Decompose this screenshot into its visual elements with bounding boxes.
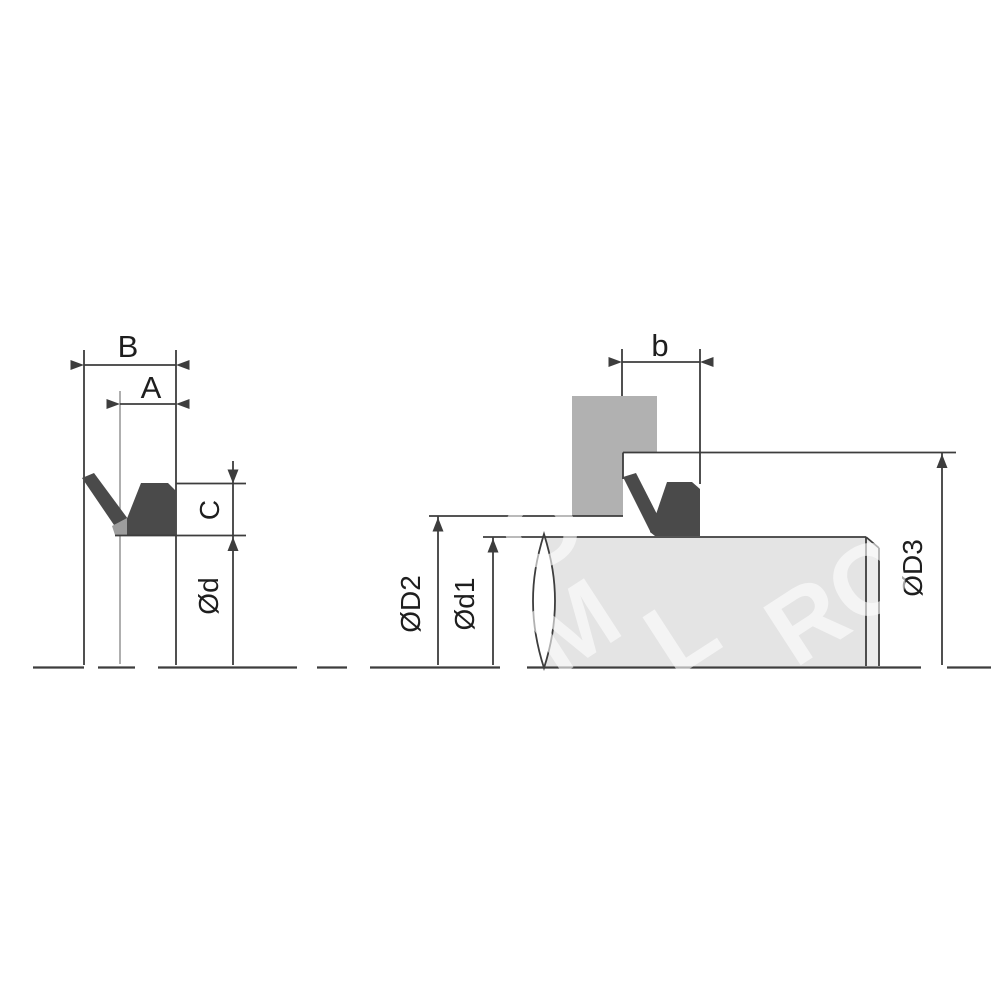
dimension-B-label: B — [118, 329, 139, 364]
dimension-b-label: b — [651, 328, 668, 363]
seal-technical-drawing: B A C Ød — [0, 0, 1000, 1000]
arrowhead-C-bottom-d-top — [228, 537, 239, 551]
arrowhead-D2 — [433, 518, 444, 532]
dimension-d-label: Ød — [193, 577, 224, 614]
dimension-D2-label: ØD2 — [395, 575, 426, 633]
seal-profile-left-lip — [82, 473, 128, 525]
arrowhead-B-right — [176, 360, 190, 370]
left-view: B A C Ød — [71, 329, 247, 665]
arrowhead-A-right — [176, 399, 190, 409]
arrowhead-C-top — [228, 470, 239, 484]
arrowhead-A-left — [107, 399, 121, 409]
arrowhead-b-left — [609, 357, 623, 367]
dimension-d1-label: Ød1 — [449, 578, 480, 631]
drawing-svg: B A C Ød — [0, 0, 1000, 1000]
arrowhead-D3 — [937, 454, 948, 468]
arrowhead-b-right — [700, 357, 714, 367]
arrowhead-d1 — [488, 539, 499, 553]
seal-installed-body — [650, 482, 700, 536]
dimension-A-label: A — [141, 370, 162, 405]
seal-profile-left-body — [126, 483, 176, 535]
arrowhead-B-left — [71, 360, 85, 370]
dimension-C-label: C — [194, 500, 225, 520]
